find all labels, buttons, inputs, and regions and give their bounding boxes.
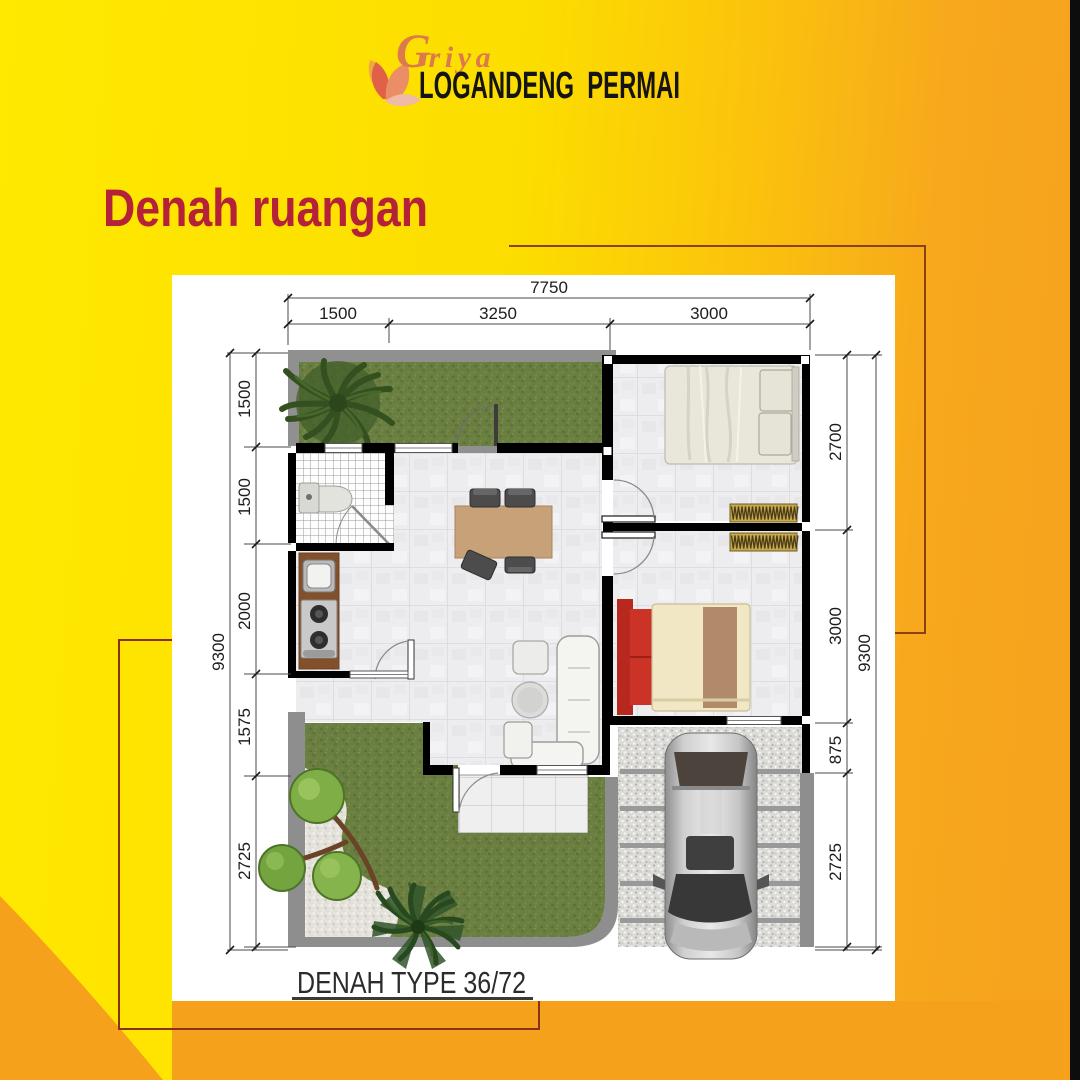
svg-text:1575: 1575 xyxy=(235,708,254,746)
svg-text:7750: 7750 xyxy=(530,278,568,297)
svg-text:2700: 2700 xyxy=(826,423,845,461)
svg-text:1500: 1500 xyxy=(319,304,357,323)
svg-text:1500: 1500 xyxy=(235,478,254,516)
svg-text:3000: 3000 xyxy=(826,607,845,645)
svg-text:3000: 3000 xyxy=(690,304,728,323)
svg-text:9300: 9300 xyxy=(209,633,228,671)
svg-text:DENAH TYPE 36/72: DENAH TYPE 36/72 xyxy=(297,965,526,1000)
svg-text:Denah ruangan: Denah ruangan xyxy=(103,179,428,238)
svg-text:3250: 3250 xyxy=(479,304,517,323)
svg-text:875: 875 xyxy=(826,736,845,764)
svg-text:2725: 2725 xyxy=(235,842,254,880)
svg-text:2725: 2725 xyxy=(826,843,845,881)
svg-text:LOGANDENG PERMAI: LOGANDENG PERMAI xyxy=(419,65,680,107)
svg-text:9300: 9300 xyxy=(855,634,874,672)
svg-text:2000: 2000 xyxy=(235,592,254,630)
svg-text:1500: 1500 xyxy=(235,380,254,418)
